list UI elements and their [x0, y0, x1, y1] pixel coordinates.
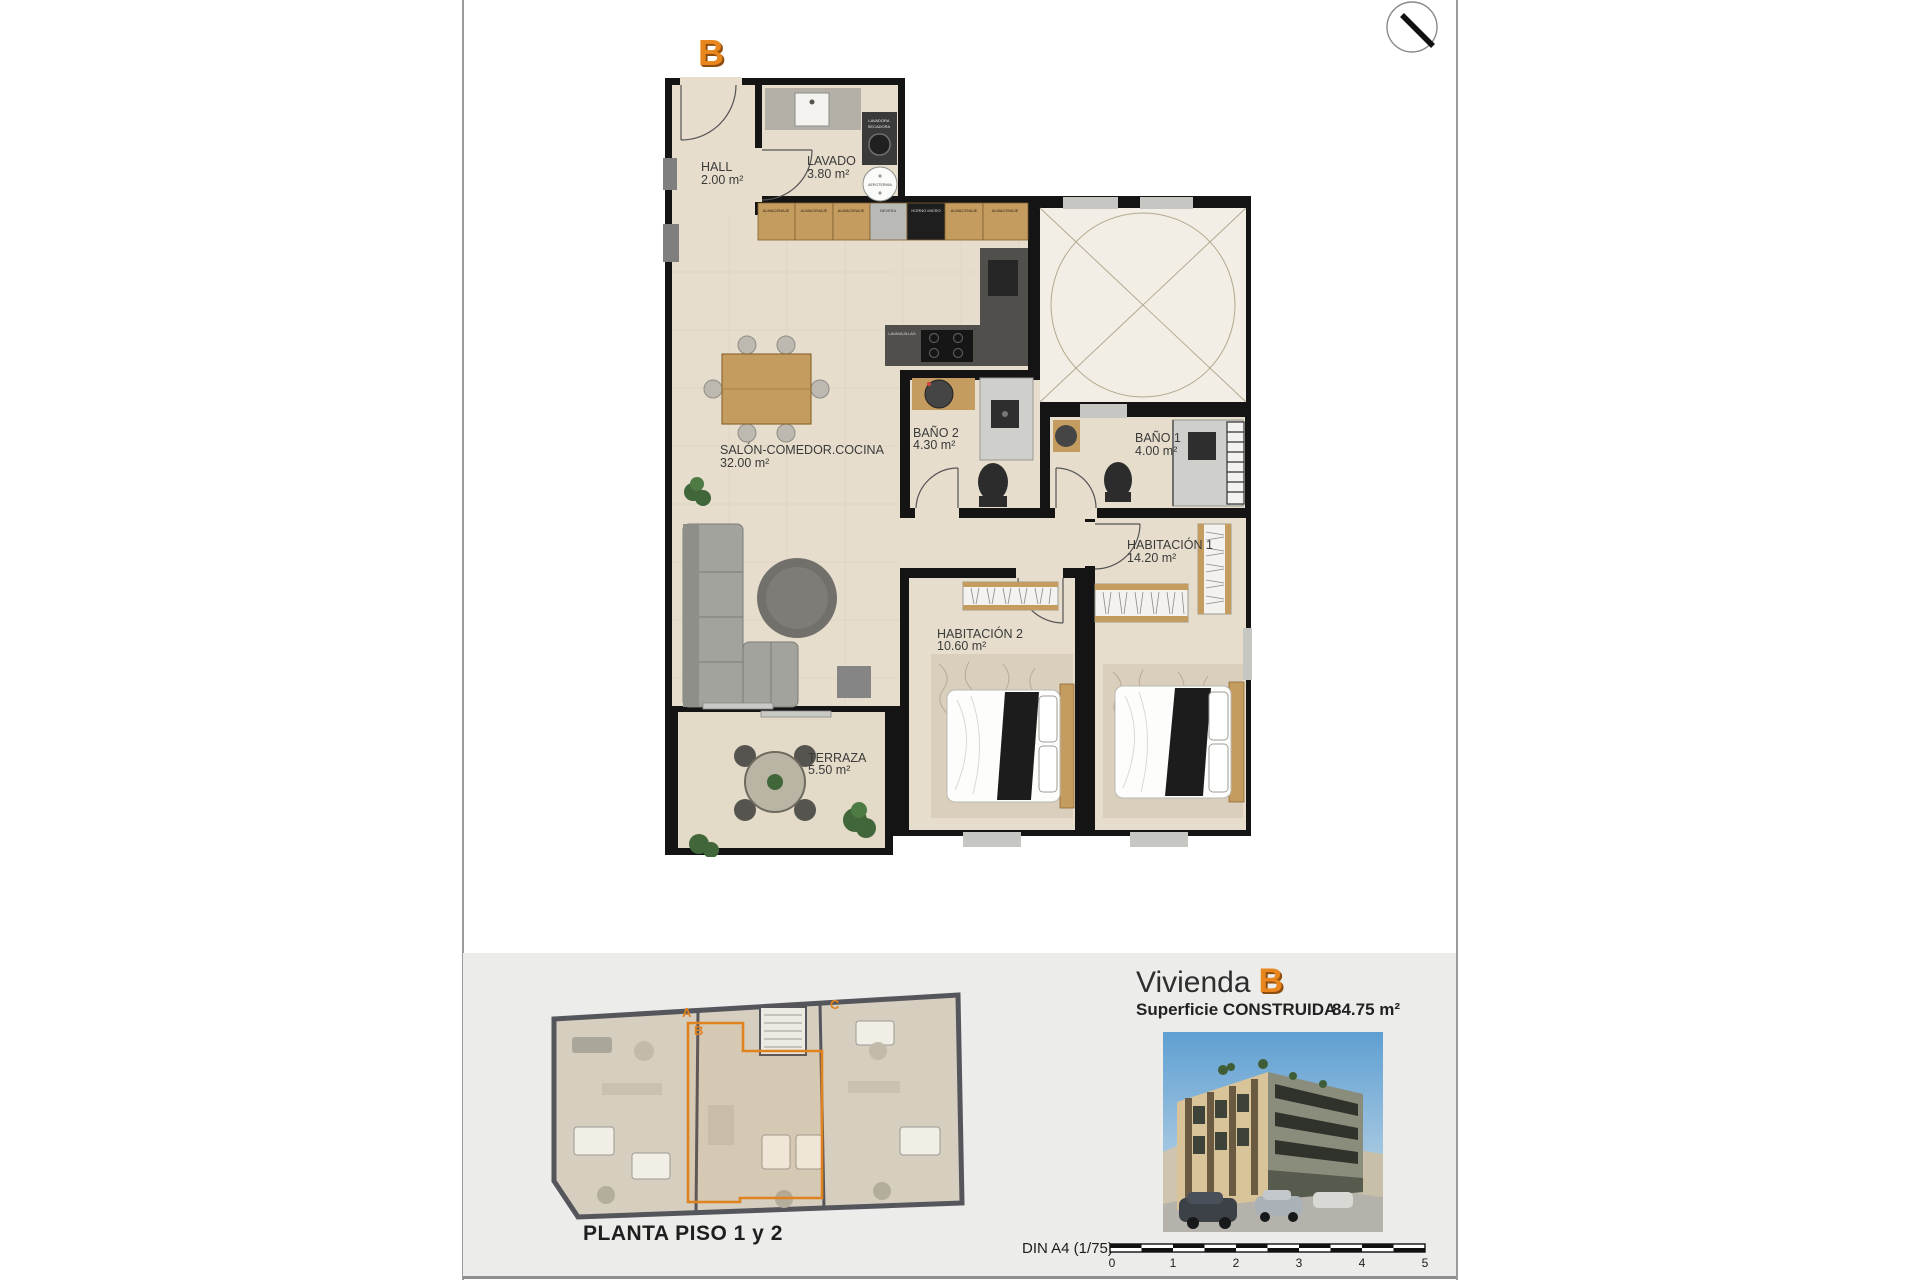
svg-text:ALMACENAJE: ALMACENAJE	[992, 208, 1019, 213]
surface-value: 84.75 m²	[1332, 1000, 1400, 1020]
label-salon: SALÓN-COMEDOR.COCINA	[720, 442, 885, 457]
floor-plan: LAVADORA SECADORA AEROTERMIA ALMACENAJE …	[663, 72, 1293, 857]
svg-text:4.30 m²: 4.30 m²	[913, 438, 955, 452]
patio-lightwell	[1040, 208, 1246, 402]
overview-plan: A B C	[548, 985, 968, 1220]
label-hab1: HABITACIÓN 1	[1127, 537, 1213, 552]
svg-text:5: 5	[1422, 1256, 1429, 1270]
washer-label-1: LAVADORA	[868, 118, 890, 123]
building-photo	[1163, 1032, 1383, 1232]
corridor-floor	[900, 518, 1085, 568]
svg-text:4: 4	[1359, 1256, 1366, 1270]
label-bano1: BAÑO 1	[1135, 431, 1181, 445]
svg-text:2.00 m²: 2.00 m²	[701, 173, 743, 187]
unit-badge: B	[698, 32, 724, 74]
dishwasher-label: LAVAVAJILLAS	[888, 331, 916, 336]
svg-text:HORNO MICRO: HORNO MICRO	[911, 208, 940, 213]
svg-text:3.80 m²: 3.80 m²	[807, 167, 849, 181]
svg-text:ALMACENAJE: ALMACENAJE	[763, 208, 790, 213]
page-border-right	[1456, 0, 1458, 1280]
washer-label-2: SECADORA	[868, 124, 891, 129]
north-arrow-icon	[1383, 0, 1447, 64]
aerotermia-label: AEROTERMIA	[868, 183, 892, 187]
surface-label: Superficie CONSTRUIDA	[1136, 1000, 1336, 1020]
scale-bar-label: DIN A4 (1/75)	[1022, 1240, 1113, 1257]
svg-text:1: 1	[1170, 1256, 1177, 1270]
scale-bar: 0 1 2 3 4 5	[1106, 1236, 1436, 1272]
svg-text:ALMACENAJE: ALMACENAJE	[838, 208, 865, 213]
svg-text:14.20 m²: 14.20 m²	[1127, 551, 1176, 565]
vivienda-letter: B	[1259, 962, 1284, 1000]
vivienda-title: ViviendaB	[1136, 962, 1283, 1001]
scale-bar-segments	[1110, 1244, 1425, 1252]
overview-letter-a: A	[682, 1005, 692, 1020]
scale-bar-ticks: 0 1 2 3 4 5	[1109, 1256, 1429, 1270]
overview-caption: PLANTA PISO 1 y 2	[583, 1222, 783, 1246]
vivienda-word: Vivienda	[1136, 966, 1251, 999]
svg-text:5.50 m²: 5.50 m²	[808, 763, 850, 777]
svg-text:NEVERA: NEVERA	[880, 208, 897, 213]
label-hall: HALL	[701, 160, 732, 174]
stair-core	[760, 1007, 806, 1055]
label-lavado: LAVADO	[807, 154, 856, 168]
plan-sheet: B	[0, 0, 1920, 1280]
svg-text:3: 3	[1296, 1256, 1303, 1270]
svg-text:10.60 m²: 10.60 m²	[937, 639, 986, 653]
svg-text:4.00 m²: 4.00 m²	[1135, 444, 1177, 458]
overview-letter-b: B	[694, 1023, 703, 1038]
room-hall-floor	[672, 85, 755, 222]
overview-unit-b-outline	[688, 1023, 822, 1202]
svg-text:2: 2	[1233, 1256, 1240, 1270]
svg-text:32.00 m²: 32.00 m²	[720, 456, 769, 470]
svg-text:ALMACENAJE: ALMACENAJE	[951, 208, 978, 213]
round-rug-inner	[766, 567, 828, 629]
svg-text:ALMACENAJE: ALMACENAJE	[801, 208, 828, 213]
overview-letter-c: C	[830, 997, 840, 1012]
svg-text:0: 0	[1109, 1256, 1116, 1270]
